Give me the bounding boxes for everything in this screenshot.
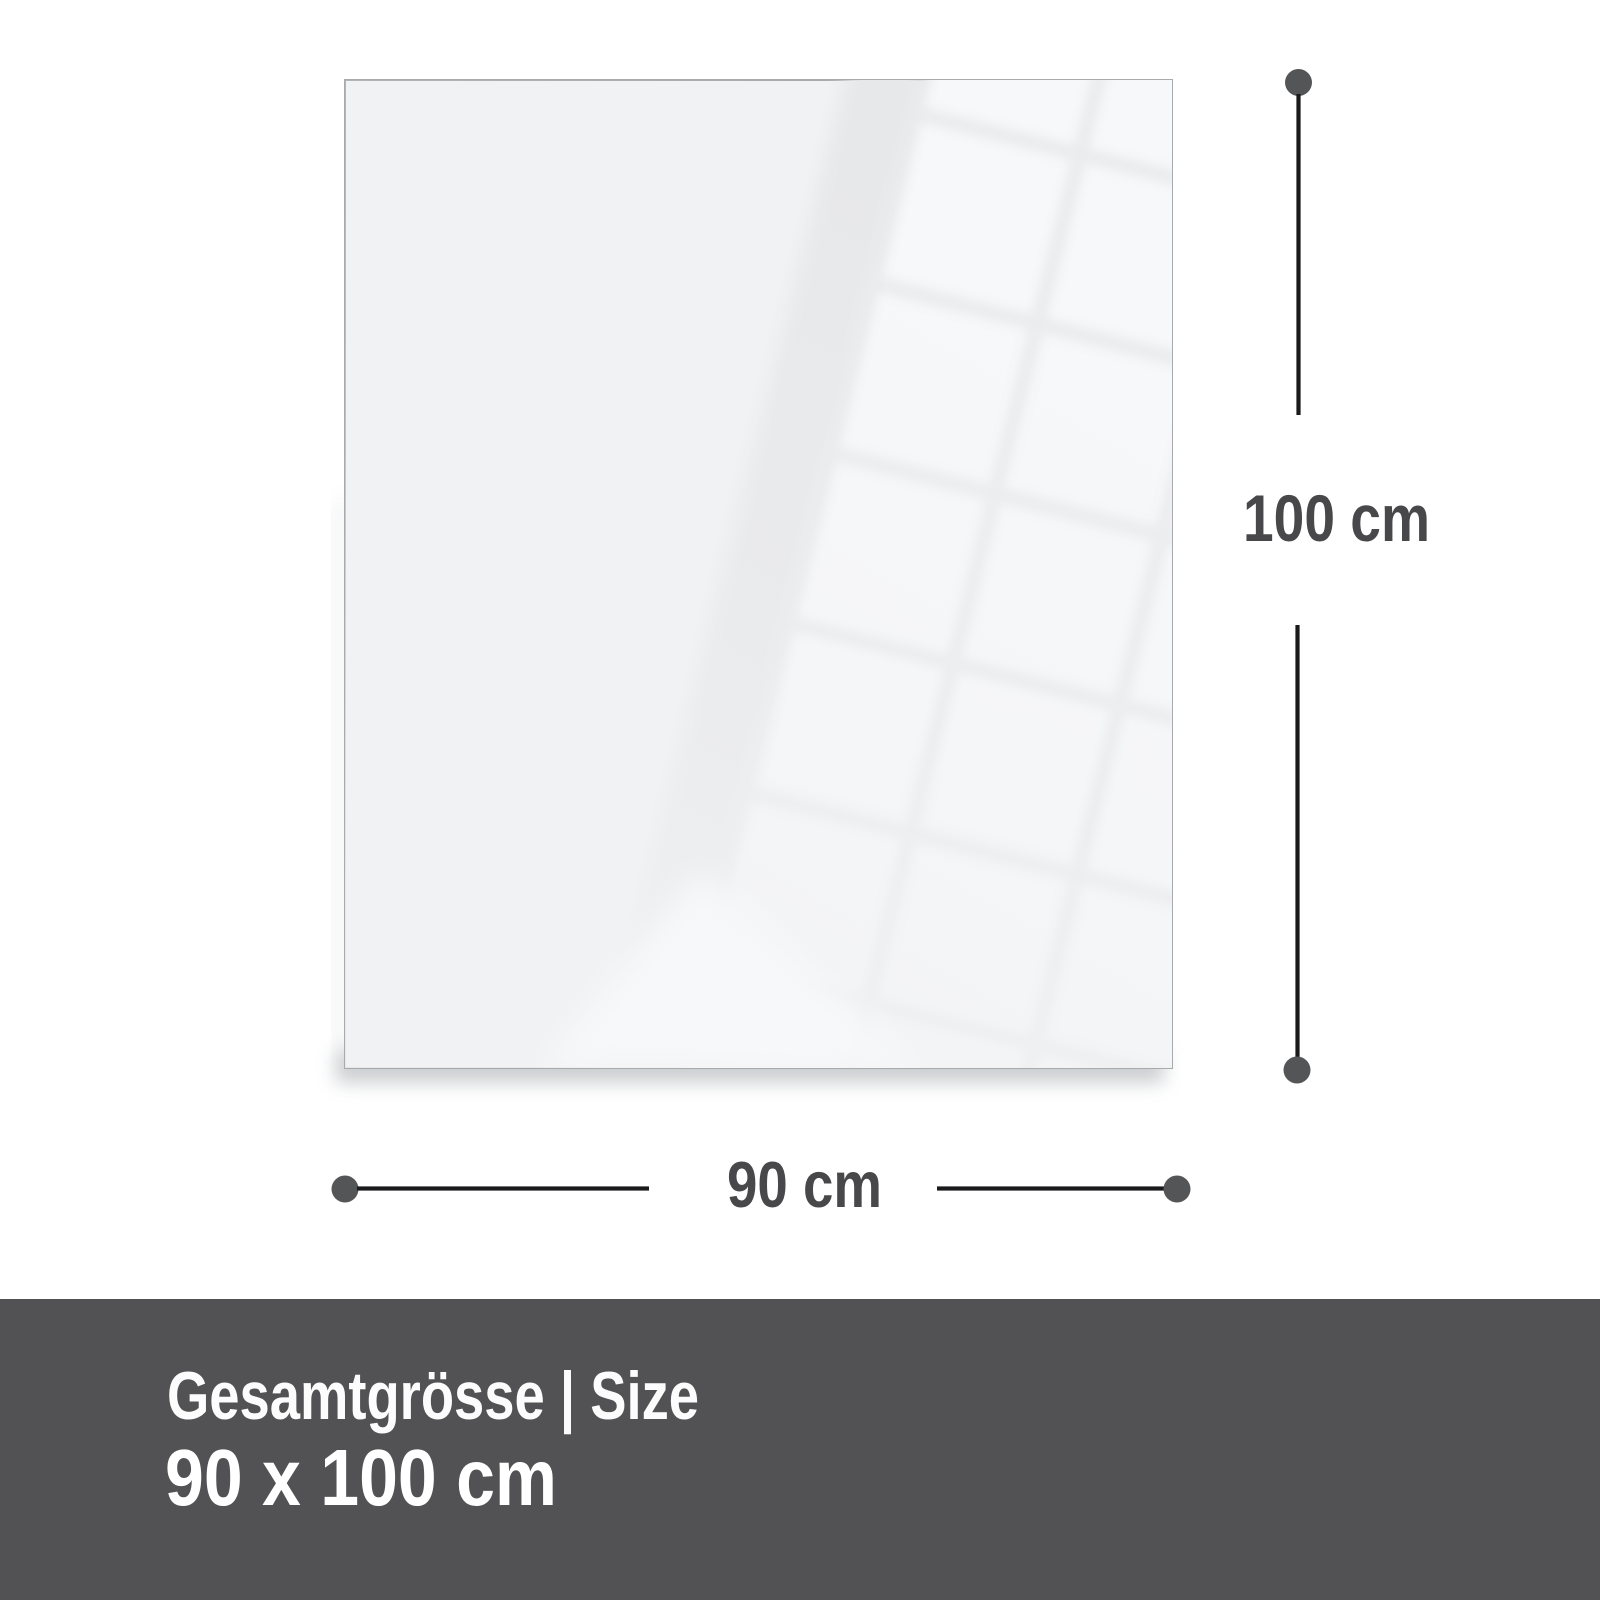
svg-text:90 x 100 cm: 90 x 100 cm: [165, 1433, 557, 1522]
svg-text:Gesamtgrösse | Size: Gesamtgrösse | Size: [167, 1358, 699, 1435]
svg-text:100 cm: 100 cm: [1243, 481, 1430, 555]
svg-text:90 cm: 90 cm: [727, 1148, 882, 1221]
